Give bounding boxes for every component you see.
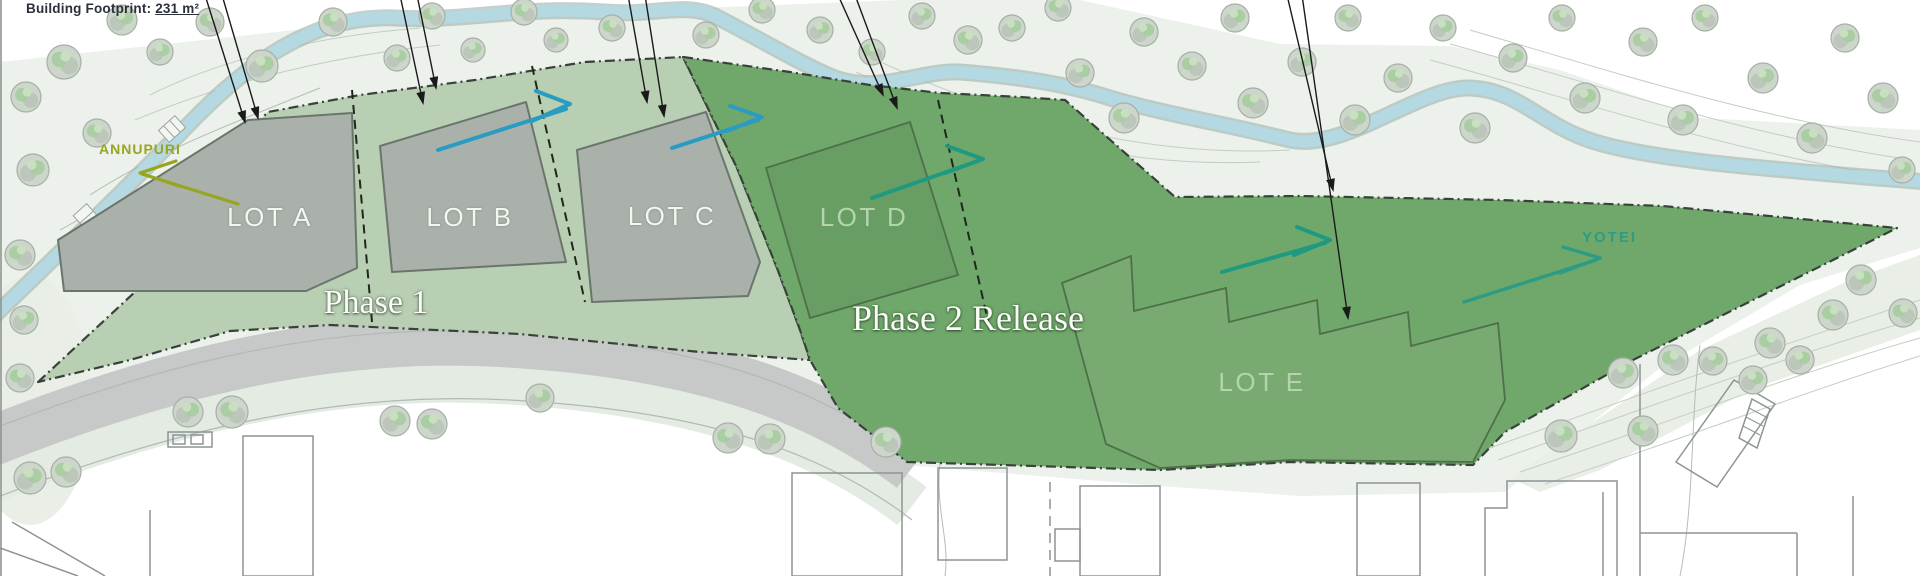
tree-icon: [749, 0, 775, 23]
tree-icon: [1335, 5, 1361, 31]
tree-icon: [999, 15, 1025, 41]
tree-icon: [1699, 347, 1727, 375]
tree-icon: [319, 8, 347, 36]
tree-icon: [599, 15, 625, 41]
tree-icon: [1045, 0, 1071, 21]
tree-icon: [1130, 18, 1158, 46]
tree-icon: [1221, 4, 1249, 32]
tree-icon: [1340, 105, 1370, 135]
tree-icon: [1628, 416, 1658, 446]
tree-icon: [1818, 300, 1848, 330]
tree-icon: [1739, 366, 1767, 394]
tree-icon: [380, 406, 410, 436]
tree-icon: [14, 462, 46, 494]
building-footprint-note: Building Footprint: 231 m²: [26, 1, 199, 16]
tree-icon: [461, 38, 485, 62]
tree-icon: [11, 82, 41, 112]
tree-icon: [1430, 15, 1456, 41]
tree-icon: [246, 50, 278, 82]
lot-e-label: LOT E: [1218, 369, 1305, 395]
tree-icon: [216, 396, 248, 428]
tree-icon: [1868, 83, 1898, 113]
lot-b-label: LOT B: [426, 204, 513, 230]
tree-icon: [1786, 346, 1814, 374]
tree-icon: [1797, 123, 1827, 153]
tree-icon: [6, 364, 34, 392]
tree-icon: [10, 306, 38, 334]
tree-icon: [1549, 5, 1575, 31]
tree-icon: [1178, 52, 1206, 80]
tree-icon: [1109, 103, 1139, 133]
tree-icon: [1748, 63, 1778, 93]
phase1-label: Phase 1: [324, 284, 429, 322]
tree-icon: [1570, 83, 1600, 113]
lot-d-label: LOT D: [820, 204, 909, 230]
tree-icon: [1384, 64, 1412, 92]
tree-icon: [526, 384, 554, 412]
tree-icon: [1668, 105, 1698, 135]
phase2-label: Phase 2 Release: [852, 297, 1084, 339]
tree-icon: [147, 39, 173, 65]
tree-icon: [1692, 5, 1718, 31]
tree-icon: [1889, 157, 1915, 183]
tree-icon: [17, 154, 49, 186]
site-plan: Building Footprint: 231 m² ANNUPURI YOTE…: [0, 0, 1920, 576]
tree-icon: [544, 28, 568, 52]
tree-icon: [871, 427, 901, 457]
site-plan-drawing: [0, 0, 1920, 576]
tree-icon: [1889, 299, 1917, 327]
tree-icon: [1066, 59, 1094, 87]
tree-icon: [1831, 24, 1859, 52]
tree-icon: [1658, 345, 1688, 375]
tree-icon: [5, 240, 35, 270]
tree-icon: [1755, 328, 1785, 358]
tree-icon: [954, 26, 982, 54]
tree-icon: [755, 424, 785, 454]
tree-icon: [909, 3, 935, 29]
tree-icon: [384, 45, 410, 71]
lot-c-label: LOT C: [628, 203, 717, 229]
tree-icon: [1545, 420, 1577, 452]
tree-icon: [693, 22, 719, 48]
tree-icon: [1238, 88, 1268, 118]
tree-icon: [511, 0, 537, 25]
tree-icon: [173, 397, 203, 427]
building-footprint-value: 231 m²: [155, 1, 199, 16]
landmark-annupuri: ANNUPURI: [99, 141, 181, 157]
tree-icon: [713, 423, 743, 453]
tree-icon: [807, 17, 833, 43]
tree-icon: [1608, 358, 1638, 388]
tree-icon: [1499, 44, 1527, 72]
landmark-yotei: YOTEI: [1582, 229, 1637, 246]
tree-icon: [1460, 113, 1490, 143]
tree-icon: [47, 45, 81, 79]
tree-icon: [1846, 265, 1876, 295]
tree-icon: [1629, 28, 1657, 56]
tree-icon: [51, 457, 81, 487]
lot-a-label: LOT A: [227, 204, 313, 230]
tree-icon: [417, 409, 447, 439]
